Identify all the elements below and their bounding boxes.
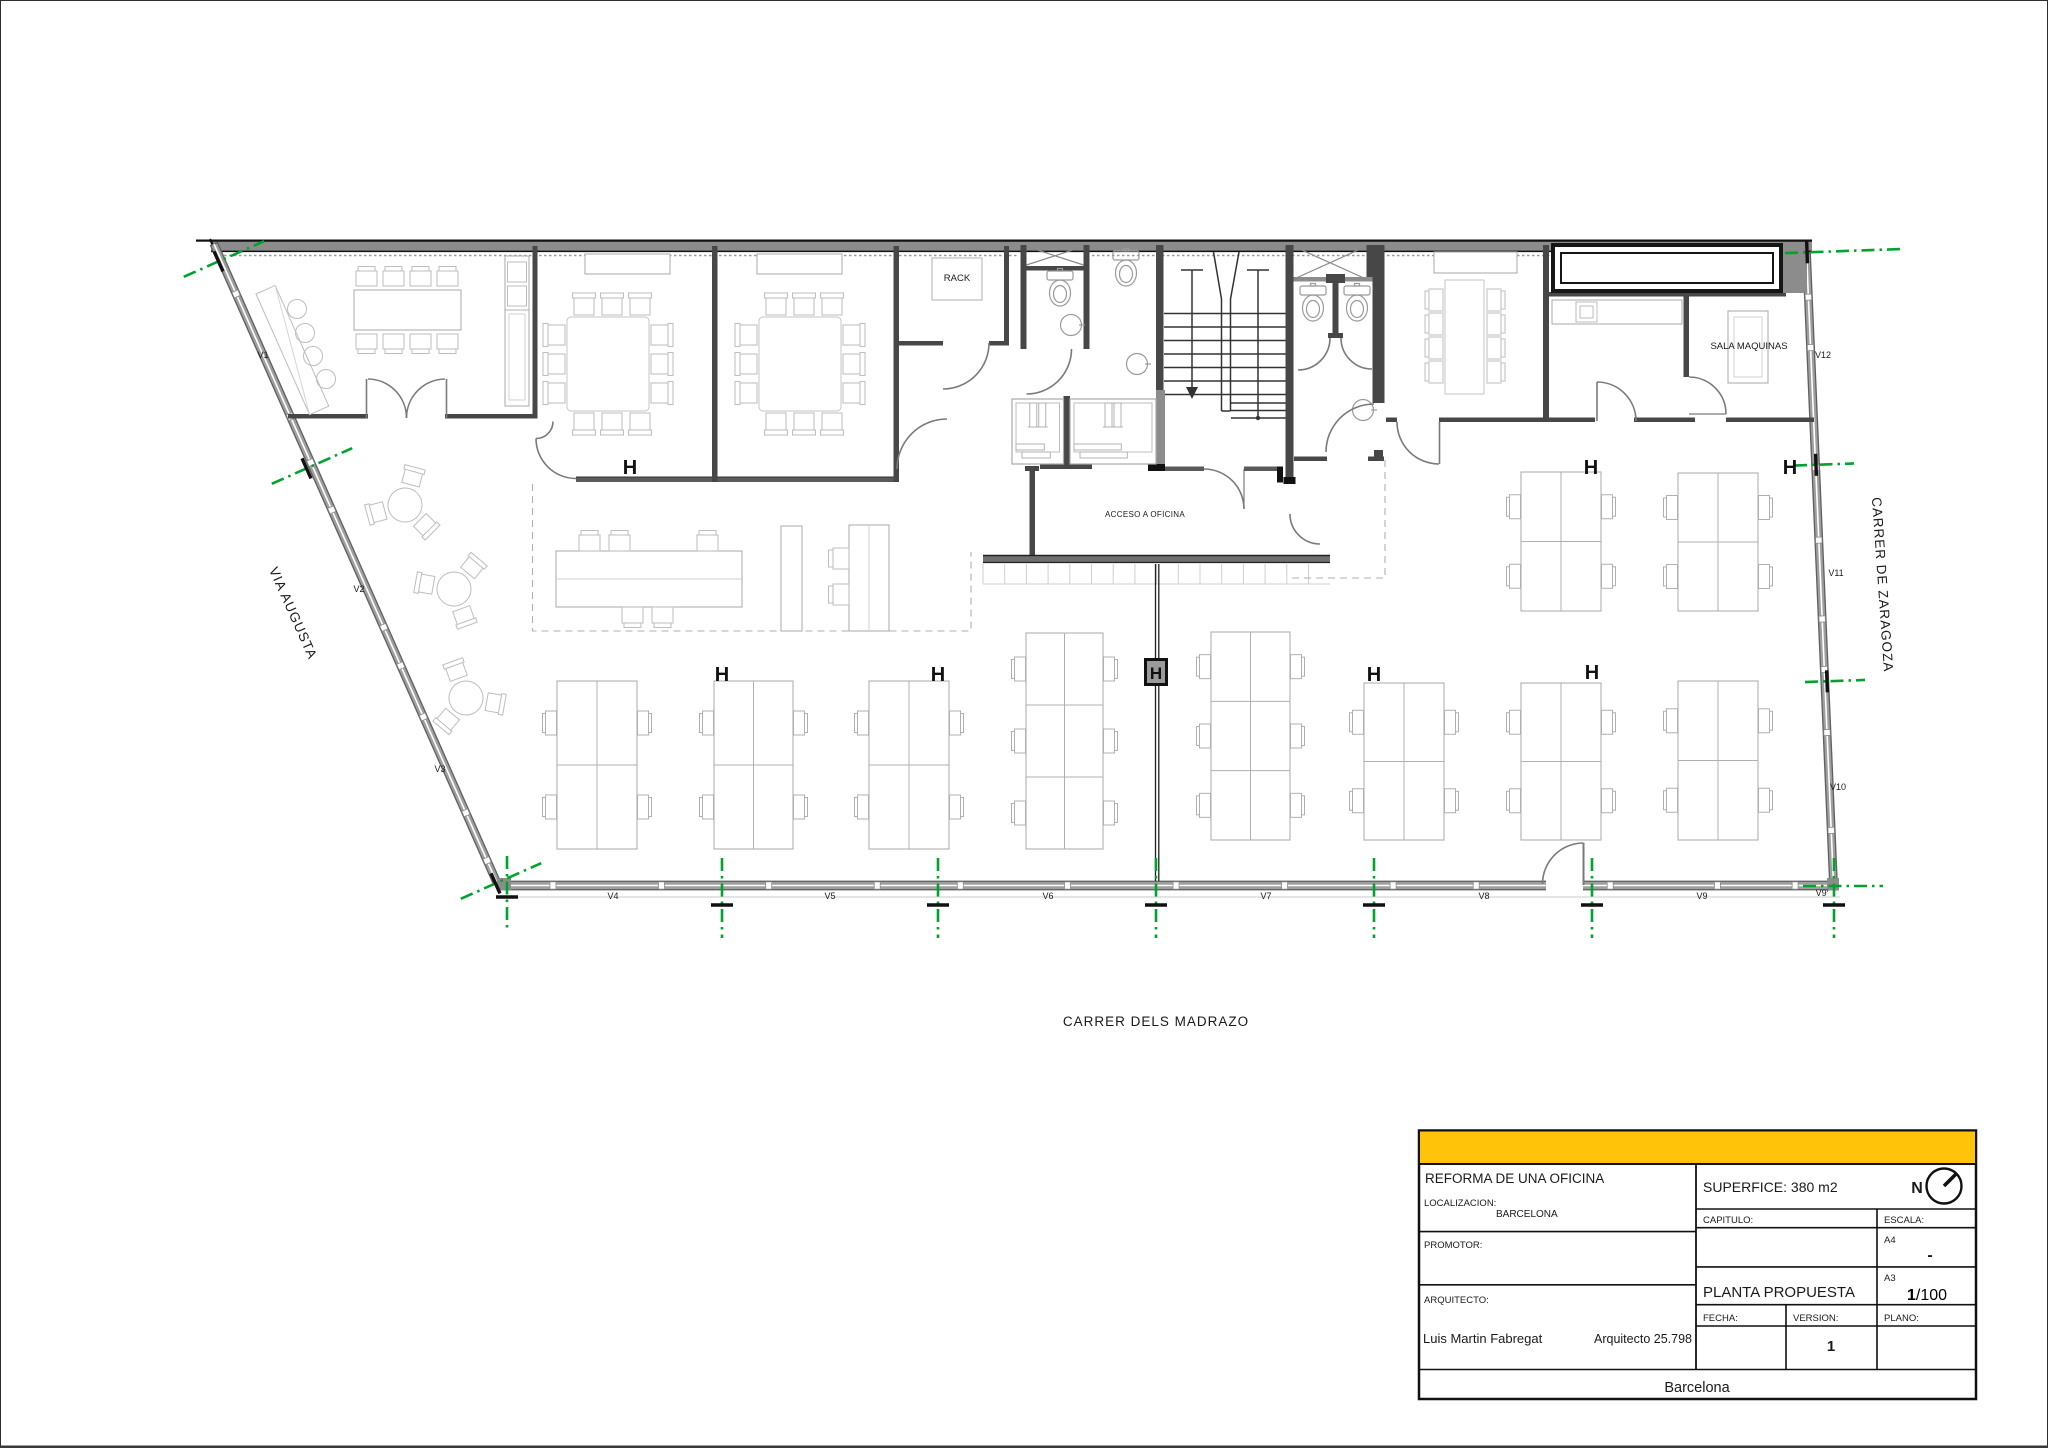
svg-text:A3: A3	[1884, 1273, 1896, 1284]
svg-text:SUPERFICE: 380 m2: SUPERFICE: 380 m2	[1703, 1179, 1838, 1195]
svg-text:SALA MAQUINAS: SALA MAQUINAS	[1710, 341, 1787, 352]
svg-text:A4: A4	[1884, 1235, 1896, 1246]
svg-text:N: N	[1911, 1180, 1923, 1197]
svg-text:H: H	[1150, 664, 1162, 683]
svg-text:V1: V1	[257, 350, 268, 360]
svg-text:Arquitecto 25.798: Arquitecto 25.798	[1594, 1332, 1692, 1346]
svg-text:ESCALA:: ESCALA:	[1884, 1215, 1924, 1226]
svg-text:V2: V2	[353, 584, 364, 594]
svg-text:V6: V6	[1042, 891, 1053, 901]
svg-text:V9′: V9′	[1816, 888, 1829, 898]
svg-text:V7: V7	[1260, 891, 1271, 901]
svg-text:ARQUITECTO:: ARQUITECTO:	[1424, 1295, 1489, 1306]
svg-text:V5: V5	[824, 891, 835, 901]
svg-text:H: H	[1585, 662, 1599, 684]
svg-text:PLANO:: PLANO:	[1884, 1313, 1919, 1324]
svg-text:V11: V11	[1828, 568, 1843, 578]
svg-text:V4: V4	[607, 891, 618, 901]
svg-text:CARRER DELS MADRAZO: CARRER DELS MADRAZO	[1063, 1014, 1249, 1029]
svg-text:1: 1	[1827, 1338, 1835, 1355]
svg-text:H: H	[623, 457, 637, 479]
svg-text:V3: V3	[434, 764, 445, 774]
svg-text:CAPITULO:: CAPITULO:	[1703, 1215, 1753, 1226]
svg-text:ACCESO A OFICINA: ACCESO A OFICINA	[1105, 510, 1185, 519]
svg-text:V10: V10	[1830, 782, 1846, 792]
svg-text:Luis Martin Fabregat: Luis Martin Fabregat	[1423, 1331, 1543, 1346]
svg-text:H: H	[931, 664, 945, 686]
svg-text:H: H	[1367, 664, 1381, 686]
svg-text:VERSION:: VERSION:	[1793, 1313, 1838, 1324]
svg-text:V12: V12	[1815, 350, 1831, 360]
svg-text:LOCALIZACION:: LOCALIZACION:	[1424, 1198, 1496, 1209]
svg-text:V9: V9	[1696, 891, 1707, 901]
svg-text:FECHA:: FECHA:	[1703, 1313, 1738, 1324]
svg-text:PROMOTOR:: PROMOTOR:	[1424, 1240, 1482, 1251]
svg-text:H: H	[1783, 457, 1797, 479]
svg-text:H: H	[715, 664, 729, 686]
svg-text:-: -	[1927, 1247, 1932, 1264]
svg-text:REFORMA DE UNA OFICINA: REFORMA DE UNA OFICINA	[1425, 1171, 1604, 1186]
svg-text:BARCELONA: BARCELONA	[1496, 1209, 1558, 1220]
svg-text:H: H	[1584, 457, 1598, 479]
svg-text:Barcelona: Barcelona	[1664, 1380, 1730, 1396]
svg-text:V8: V8	[1478, 891, 1489, 901]
svg-text:RACK: RACK	[944, 273, 971, 284]
svg-text:PLANTA PROPUESTA: PLANTA PROPUESTA	[1703, 1284, 1855, 1301]
svg-text:1/100: 1/100	[1907, 1287, 1947, 1304]
